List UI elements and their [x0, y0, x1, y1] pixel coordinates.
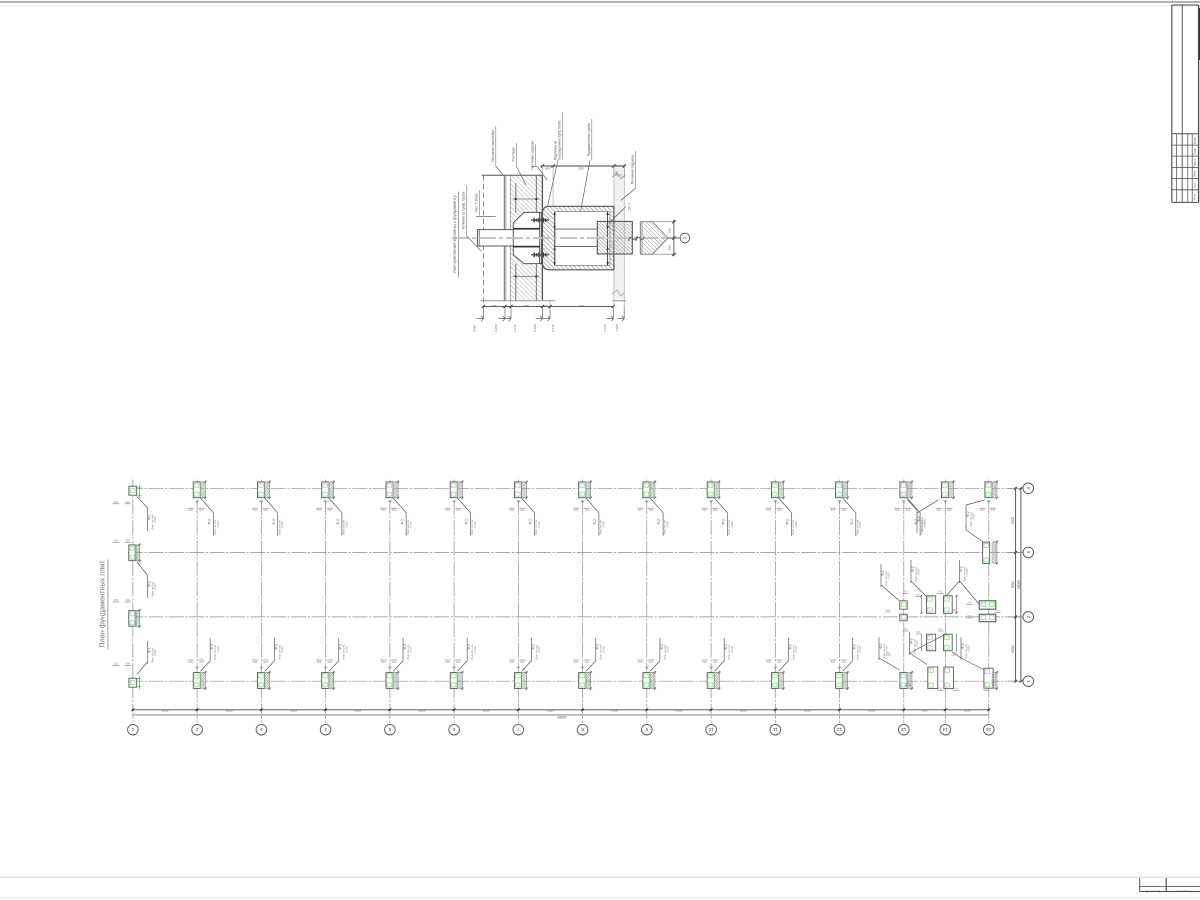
svg-text:-0.620: -0.620	[858, 646, 862, 654]
svg-text:-0.620: -0.620	[858, 521, 862, 529]
svg-text:6000: 6000	[611, 708, 618, 712]
svg-text:6000: 6000	[804, 708, 811, 712]
svg-text:600: 600	[253, 660, 258, 664]
svg-text:525: 525	[578, 166, 583, 170]
svg-text:14: 14	[942, 727, 948, 732]
svg-text:12: 12	[837, 727, 843, 732]
svg-text:600: 600	[767, 660, 772, 664]
svg-text:300: 300	[392, 660, 397, 664]
svg-text:300: 300	[456, 508, 461, 512]
svg-text:9: 9	[645, 727, 648, 732]
svg-text:500: 500	[906, 683, 911, 686]
svg-text:-1.100: -1.100	[615, 324, 619, 333]
svg-text:390: 390	[126, 539, 131, 543]
svg-text:-0.620: -0.620	[967, 645, 971, 653]
svg-text:Ф-2: Ф-2	[208, 519, 212, 525]
svg-text:5: 5	[388, 727, 391, 732]
svg-text:-0.420: -0.420	[551, 324, 555, 333]
svg-text:-0.620: -0.620	[153, 649, 157, 657]
svg-text:500: 500	[995, 610, 1000, 613]
svg-text:500: 500	[886, 609, 891, 612]
svg-text:-0.620: -0.620	[666, 521, 670, 529]
svg-text:6000: 6000	[1011, 517, 1015, 524]
svg-text:300: 300	[263, 660, 268, 664]
svg-text:-0.620: -0.620	[965, 568, 969, 576]
svg-text:Песчаная прослойка: Песчаная прослойка	[491, 130, 495, 162]
svg-text:-0.620: -0.620	[601, 646, 605, 654]
svg-text:Песчаная подушка: Песчаная подушка	[631, 155, 635, 184]
svg-text:500: 500	[953, 609, 958, 612]
svg-text:500: 500	[579, 304, 584, 308]
svg-text:Ф-2: Ф-2	[593, 519, 597, 525]
svg-text:600: 600	[510, 660, 515, 664]
svg-text:4: 4	[324, 727, 327, 732]
svg-text:500: 500	[938, 688, 943, 691]
svg-text:-0.620: -0.620	[216, 521, 220, 529]
svg-text:300: 300	[520, 660, 525, 664]
svg-text:130: 130	[491, 304, 496, 308]
svg-text:Ф-2: Ф-2	[529, 519, 533, 525]
svg-text:-0.620: -0.620	[730, 646, 734, 654]
svg-text:-0.620: -0.620	[923, 518, 927, 526]
svg-text:-0.620: -0.620	[917, 568, 921, 576]
svg-text:6000: 6000	[1011, 581, 1015, 588]
svg-text:6000: 6000	[868, 708, 875, 712]
svg-text:-0.620: -0.620	[666, 646, 670, 654]
svg-text:-0.250: -0.250	[513, 324, 517, 333]
svg-text:300: 300	[615, 171, 619, 176]
svg-text:300: 300	[392, 508, 397, 512]
svg-text:Ф-2: Ф-2	[850, 519, 854, 525]
svg-text:-0.620: -0.620	[730, 521, 734, 529]
svg-text:300: 300	[777, 660, 782, 664]
svg-text:Ростверк: Ростверк	[511, 147, 515, 161]
svg-text:3: 3	[260, 727, 263, 732]
svg-text:Ф-2: Ф-2	[400, 519, 404, 525]
svg-text:6: 6	[452, 727, 455, 732]
svg-text:390: 390	[126, 662, 131, 666]
svg-text:-0.620: -0.620	[344, 521, 348, 529]
svg-text:Лист: Лист	[1193, 170, 1197, 177]
svg-text:-0.300: -0.300	[533, 324, 537, 333]
svg-text:390: 390	[126, 598, 131, 602]
svg-text:1: 1	[131, 727, 134, 732]
svg-text:300: 300	[199, 660, 204, 664]
svg-text:600: 600	[381, 508, 386, 512]
svg-text:300: 300	[199, 508, 204, 512]
svg-text:300: 300	[906, 508, 911, 512]
svg-text:600: 600	[317, 660, 322, 664]
svg-text:-0.620: -0.620	[409, 521, 413, 529]
svg-text:-0.620: -0.620	[409, 646, 413, 654]
svg-text:300: 300	[585, 508, 590, 512]
svg-text:330: 330	[114, 539, 119, 543]
svg-text:Изм: Изм	[1193, 194, 1197, 200]
svg-text:300: 300	[777, 508, 782, 512]
svg-text:600: 600	[574, 660, 579, 664]
svg-text:2: 2	[195, 727, 198, 732]
svg-text:500: 500	[967, 615, 972, 618]
svg-text:50: 50	[544, 304, 548, 308]
svg-text:-0.620: -0.620	[537, 646, 541, 654]
svg-text:330: 330	[114, 598, 119, 602]
svg-text:300: 300	[841, 660, 846, 664]
svg-text:-0.200: -0.200	[494, 324, 498, 333]
svg-text:600: 600	[895, 508, 900, 512]
svg-text:Ф-2: Ф-2	[465, 519, 469, 525]
svg-text:600: 600	[524, 304, 529, 308]
svg-text:-0.620: -0.620	[153, 516, 157, 524]
svg-text:10: 10	[708, 727, 714, 732]
svg-text:500: 500	[903, 628, 908, 631]
svg-text:300: 300	[991, 508, 996, 512]
svg-text:150: 150	[668, 228, 672, 233]
svg-text:-0.620: -0.620	[344, 646, 348, 654]
svg-text:500: 500	[938, 591, 943, 594]
svg-text:-1.220: -1.220	[603, 324, 607, 333]
svg-text:4000: 4000	[921, 708, 928, 712]
svg-text:600: 600	[574, 508, 579, 512]
svg-text:600: 600	[445, 660, 450, 664]
svg-text:600: 600	[253, 508, 258, 512]
svg-text:600: 600	[445, 508, 450, 512]
svg-text:Подп: Подп	[1193, 148, 1197, 156]
svg-text:600: 600	[702, 660, 707, 664]
svg-text:600: 600	[937, 508, 942, 512]
svg-text:15: 15	[986, 727, 992, 732]
svg-text:Ф-2: Ф-2	[336, 519, 340, 525]
svg-text:600: 600	[980, 508, 985, 512]
svg-text:330: 330	[114, 662, 119, 666]
svg-text:-0.620: -0.620	[216, 646, 220, 654]
svg-text:6000: 6000	[290, 708, 297, 712]
svg-text:План фундаментных плит: План фундаментных плит	[98, 560, 107, 648]
svg-text:500: 500	[984, 688, 989, 691]
svg-text:-0.620: -0.620	[473, 521, 477, 529]
svg-text:80000: 80000	[557, 715, 566, 719]
svg-text:300: 300	[456, 660, 461, 664]
svg-text:300: 300	[947, 508, 952, 512]
svg-text:-0.620: -0.620	[280, 521, 284, 529]
svg-text:безусадочного ЦПС М300: безусадочного ЦПС М300	[558, 120, 562, 160]
svg-text:Лист t=10мм: Лист t=10мм	[475, 193, 479, 213]
svg-text:600: 600	[638, 508, 643, 512]
svg-text:Фундаментная тумба: Фундаментная тумба	[587, 123, 591, 156]
svg-text:300: 300	[713, 660, 718, 664]
svg-text:6000: 6000	[226, 708, 233, 712]
svg-text:2: 2	[1026, 615, 1031, 618]
svg-text:500: 500	[954, 688, 959, 691]
svg-text:600: 600	[831, 508, 836, 512]
svg-text:-0.620: -0.620	[972, 513, 976, 521]
svg-text:Ф-2: Ф-2	[272, 519, 276, 525]
svg-text:500: 500	[886, 652, 891, 655]
svg-text:6000: 6000	[354, 708, 361, 712]
svg-text:6000: 6000	[161, 708, 168, 712]
svg-text:-0.620: -0.620	[915, 640, 919, 648]
svg-text:4000: 4000	[963, 708, 970, 712]
svg-text:Кол: Кол	[1193, 182, 1197, 187]
svg-text:Песчаная подушка: Песчаная подушка	[530, 141, 534, 170]
svg-text:6000: 6000	[1011, 645, 1015, 652]
svg-text:300: 300	[328, 508, 333, 512]
svg-text:-0.620: -0.620	[601, 521, 605, 529]
svg-text:Ф-2: Ф-2	[657, 519, 661, 525]
svg-text:600: 600	[831, 660, 836, 664]
svg-text:18000: 18000	[1017, 580, 1021, 589]
svg-text:8: 8	[581, 727, 584, 732]
svg-text:Дата: Дата	[1193, 137, 1197, 144]
svg-text:600: 600	[638, 660, 643, 664]
svg-text:300: 300	[328, 660, 333, 664]
svg-text:11: 11	[772, 727, 777, 732]
svg-text:6000: 6000	[675, 708, 682, 712]
svg-text:330: 330	[114, 500, 119, 504]
svg-text:-0.620: -0.620	[794, 521, 798, 529]
svg-text:Ф-2: Ф-2	[722, 519, 726, 525]
svg-text:-0.620: -0.620	[537, 521, 541, 529]
svg-text:0.000: 0.000	[473, 324, 477, 332]
svg-text:300: 300	[263, 508, 268, 512]
svg-text:300: 300	[649, 508, 654, 512]
svg-text:Ф-2: Ф-2	[786, 519, 790, 525]
svg-text:1: 1	[1026, 679, 1031, 682]
svg-text:-0.620: -0.620	[153, 583, 157, 591]
svg-text:6000: 6000	[547, 708, 554, 712]
svg-text:7: 7	[517, 727, 520, 732]
svg-text:500: 500	[916, 594, 921, 597]
svg-text:600: 600	[510, 508, 515, 512]
svg-text:-0.620: -0.620	[794, 646, 798, 654]
svg-text:-0.620: -0.620	[280, 646, 284, 654]
svg-text:300: 300	[520, 508, 525, 512]
svg-text:390: 390	[126, 500, 131, 504]
svg-text:300: 300	[585, 660, 590, 664]
svg-text:500: 500	[938, 628, 943, 631]
svg-text:300: 300	[713, 508, 718, 512]
svg-text:600: 600	[702, 508, 707, 512]
svg-text:500: 500	[903, 591, 908, 594]
svg-text:600: 600	[188, 660, 193, 664]
svg-text:4: 4	[1026, 487, 1031, 490]
svg-text:3: 3	[1026, 551, 1031, 554]
svg-text:-0.620: -0.620	[473, 646, 477, 654]
svg-text:Колонна из проф. трубы: Колонна из проф. трубы	[462, 191, 466, 229]
svg-text:600: 600	[188, 508, 193, 512]
svg-text:Копировал: Копировал	[1176, 889, 1191, 893]
svg-text:Ос-1: Ос-1	[628, 203, 632, 210]
svg-text:500: 500	[953, 652, 958, 655]
svg-text:100: 100	[545, 166, 550, 170]
svg-text:6000: 6000	[418, 708, 425, 712]
svg-text:600: 600	[767, 508, 772, 512]
svg-text:-0.820: -0.820	[887, 572, 891, 580]
svg-text:500: 500	[916, 631, 921, 634]
svg-text:500: 500	[967, 602, 972, 605]
svg-text:№док: №док	[1193, 158, 1197, 167]
svg-text:6000: 6000	[740, 708, 747, 712]
svg-text:Формат А1: Формат А1	[1145, 889, 1160, 893]
svg-text:300: 300	[841, 508, 846, 512]
svg-text:150: 150	[668, 245, 672, 250]
svg-text:13: 13	[901, 727, 907, 732]
svg-text:6000: 6000	[483, 708, 490, 712]
svg-text:600: 600	[381, 660, 386, 664]
svg-text:600: 600	[317, 508, 322, 512]
svg-text:300: 300	[649, 660, 654, 664]
svg-text:Узел крепления колонны к фунда: Узел крепления колонны к фундаменту	[452, 194, 457, 273]
